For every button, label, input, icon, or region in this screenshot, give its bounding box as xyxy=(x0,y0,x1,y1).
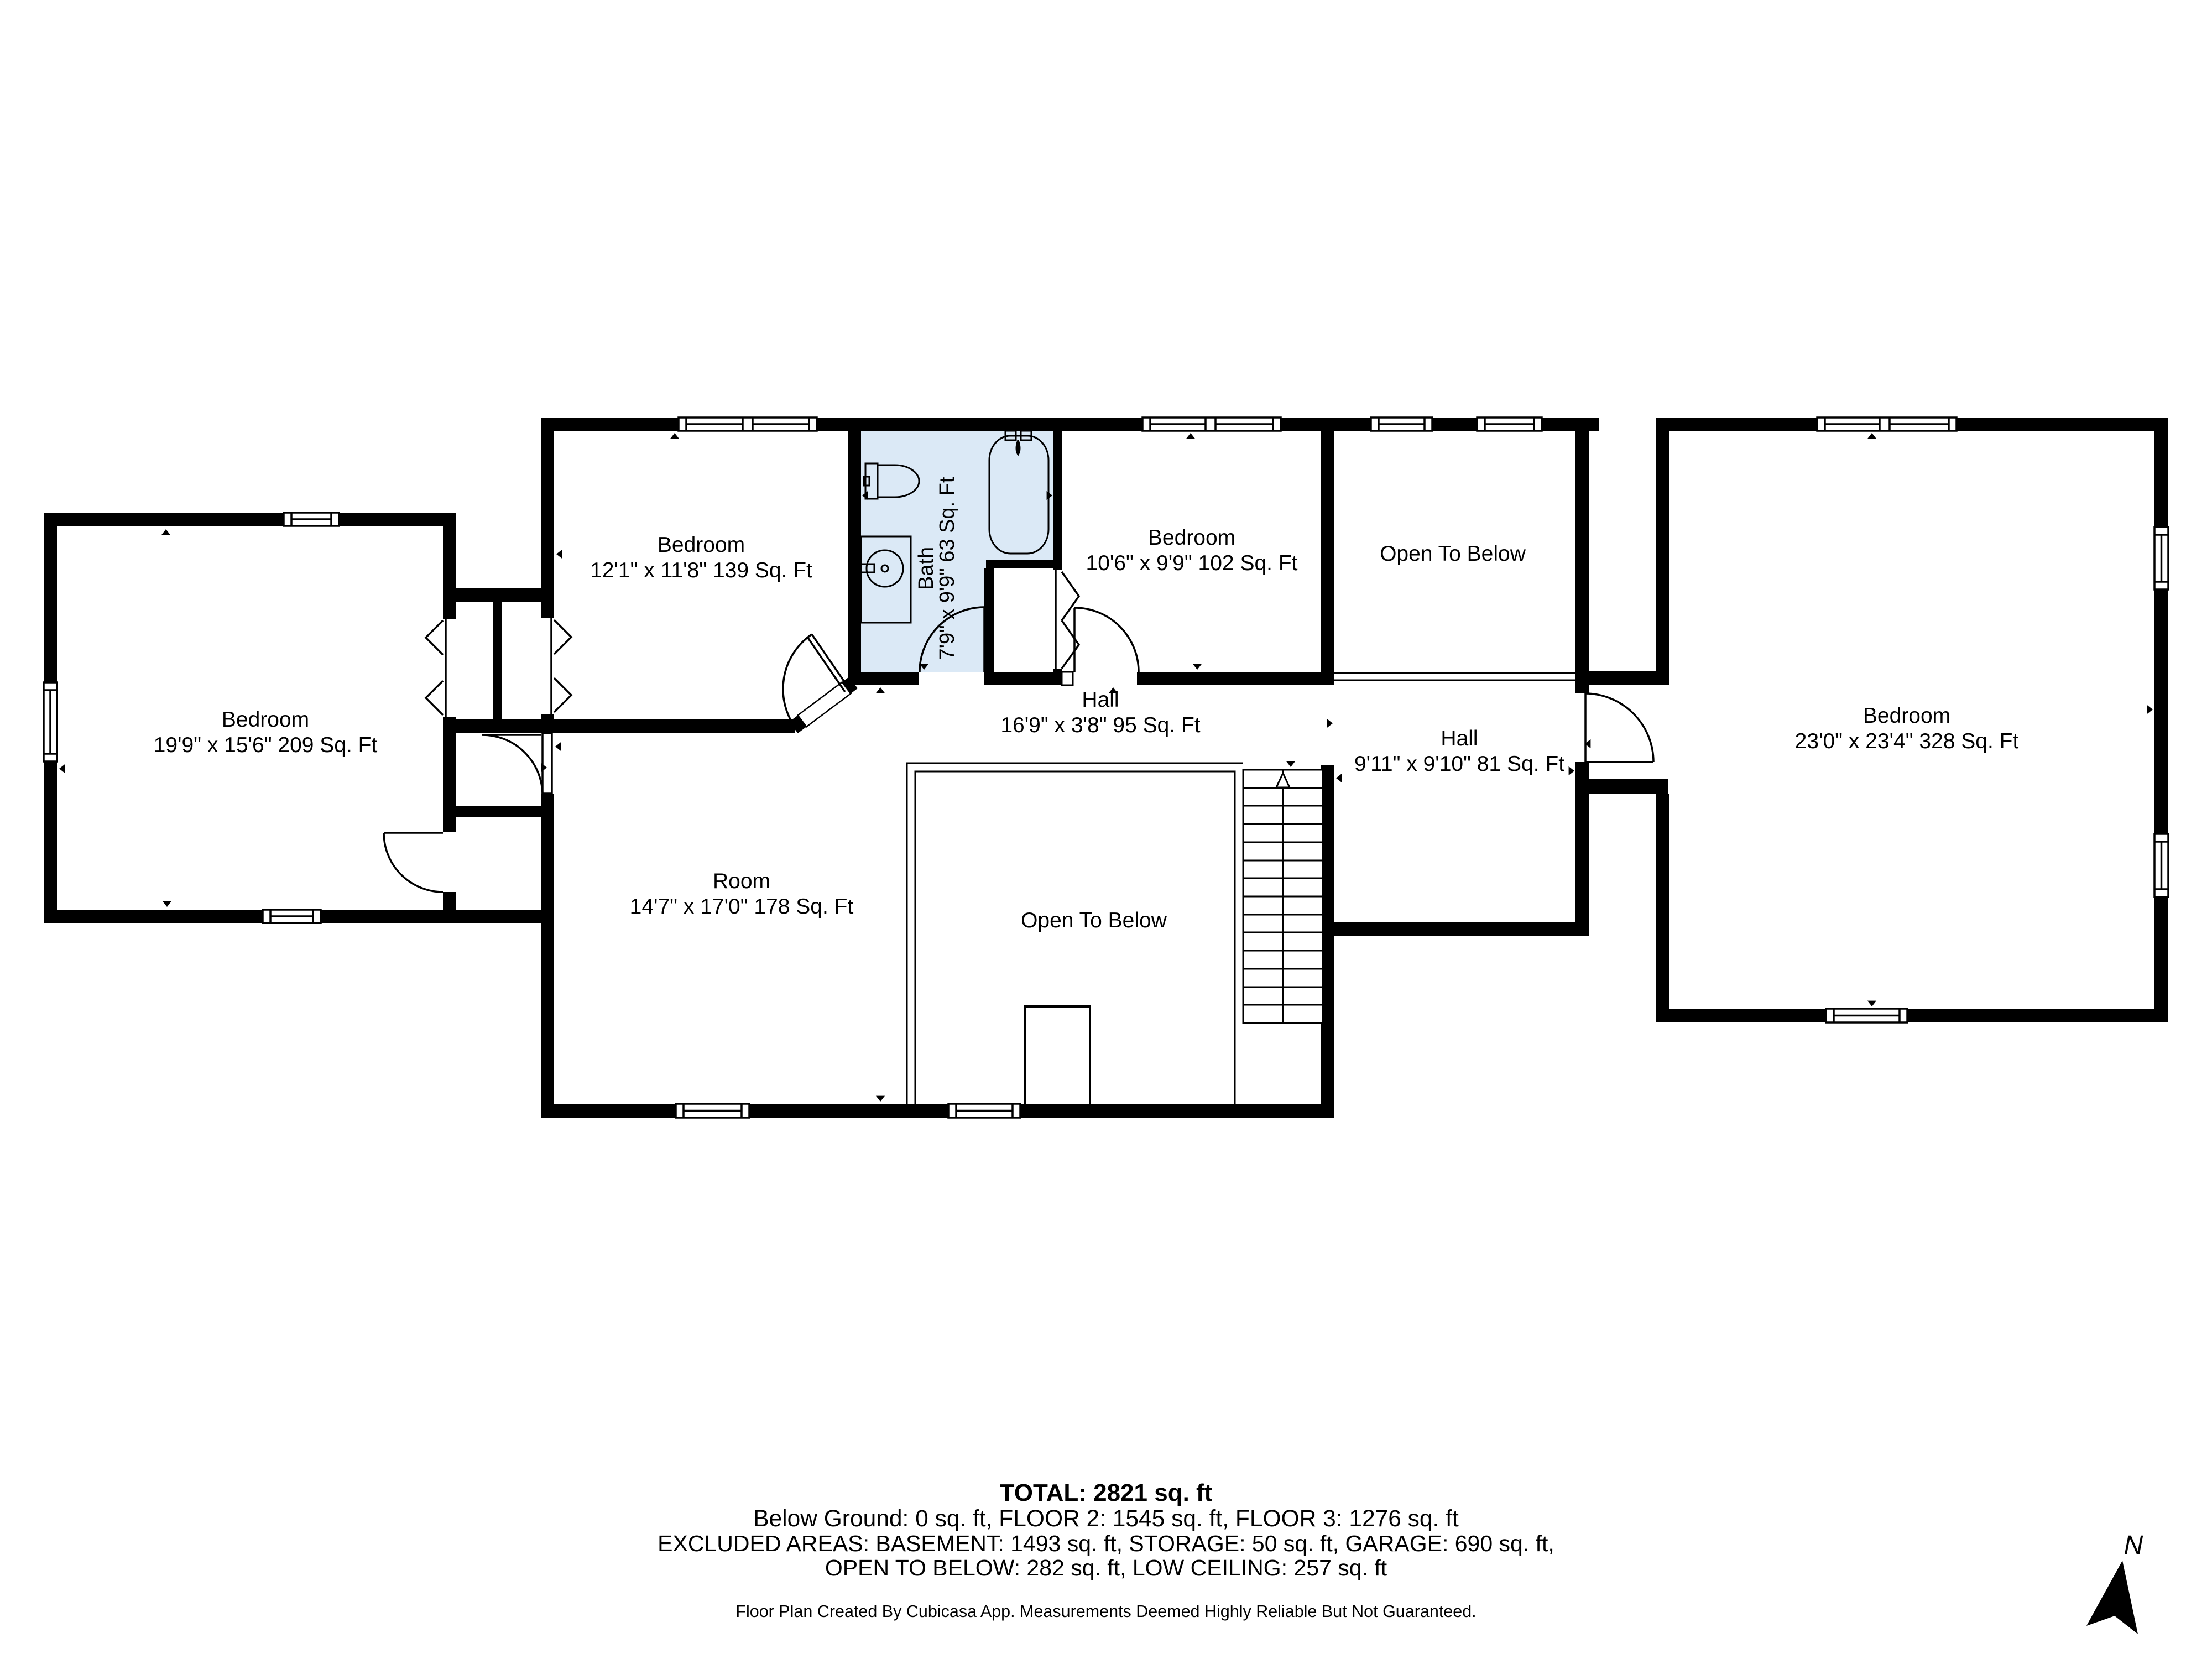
svg-text:19'9" x 15'6" 209 Sq. Ft: 19'9" x 15'6" 209 Sq. Ft xyxy=(154,733,378,757)
svg-text:Bedroom: Bedroom xyxy=(1148,526,1235,550)
svg-text:10'6" x 9'9" 102 Sq. Ft: 10'6" x 9'9" 102 Sq. Ft xyxy=(1086,551,1298,575)
svg-text:Hall: Hall xyxy=(1082,688,1119,712)
svg-text:16'9" x 3'8" 95 Sq. Ft: 16'9" x 3'8" 95 Sq. Ft xyxy=(1000,713,1200,737)
svg-text:Room: Room xyxy=(713,869,770,893)
svg-text:23'0" x 23'4" 328 Sq. Ft: 23'0" x 23'4" 328 Sq. Ft xyxy=(1795,729,2019,753)
svg-text:9'11" x 9'10" 81 Sq. Ft: 9'11" x 9'10" 81 Sq. Ft xyxy=(1354,752,1564,776)
svg-text:Hall: Hall xyxy=(1441,727,1478,750)
svg-text:Bath: Bath xyxy=(915,547,938,590)
svg-text:Open To Below: Open To Below xyxy=(1380,542,1526,566)
svg-text:Bedroom: Bedroom xyxy=(222,708,309,732)
svg-text:OPEN TO BELOW: 282 sq. ft, LOW: OPEN TO BELOW: 282 sq. ft, LOW CEILING: … xyxy=(825,1555,1387,1580)
svg-text:N: N xyxy=(2124,1531,2143,1560)
svg-text:12'1" x 11'8" 139 Sq. Ft: 12'1" x 11'8" 139 Sq. Ft xyxy=(590,559,812,582)
svg-text:14'7" x 17'0" 178 Sq. Ft: 14'7" x 17'0" 178 Sq. Ft xyxy=(630,895,854,919)
svg-text:Floor Plan Created By Cubicasa: Floor Plan Created By Cubicasa App. Meas… xyxy=(735,1602,1476,1621)
svg-text:TOTAL: 2821 sq. ft: TOTAL: 2821 sq. ft xyxy=(1000,1479,1213,1506)
svg-text:EXCLUDED AREAS: BASEMENT: 1493: EXCLUDED AREAS: BASEMENT: 1493 sq. ft, S… xyxy=(658,1531,1554,1556)
svg-text:Bedroom: Bedroom xyxy=(658,533,745,557)
svg-text:Open To Below: Open To Below xyxy=(1021,909,1167,932)
svg-text:7'9" x 9'9" 63 Sq. Ft: 7'9" x 9'9" 63 Sq. Ft xyxy=(936,477,959,660)
svg-text:Below Ground: 0 sq. ft, FLOOR: Below Ground: 0 sq. ft, FLOOR 2: 1545 sq… xyxy=(753,1506,1459,1532)
svg-text:Bedroom: Bedroom xyxy=(1863,704,1950,728)
